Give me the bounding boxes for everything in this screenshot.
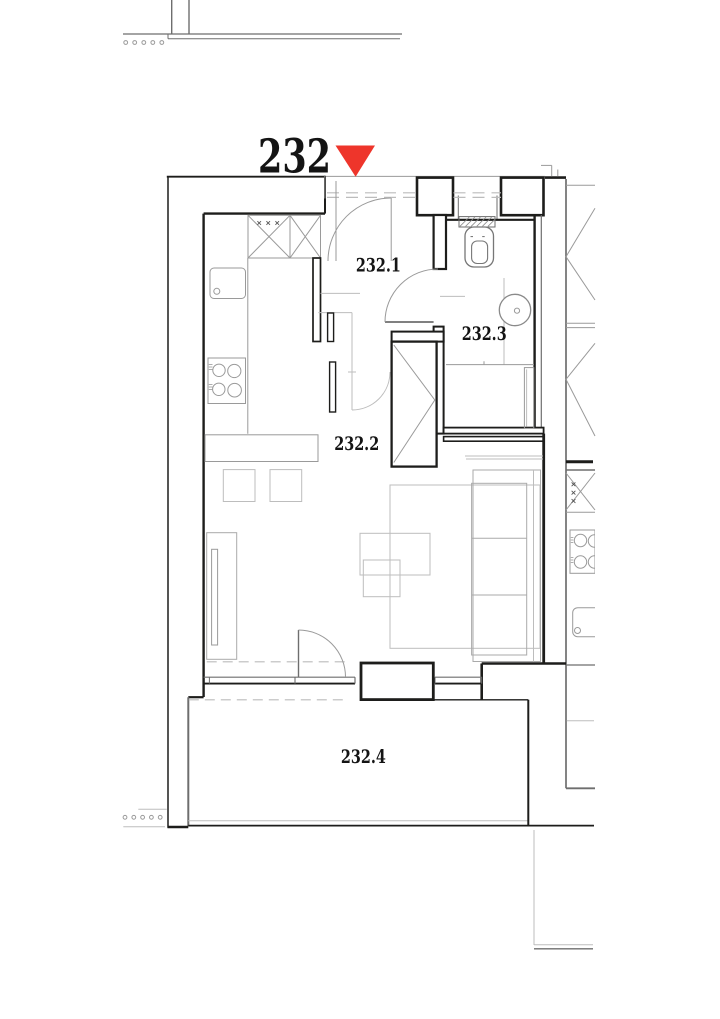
kitchen (205, 215, 321, 501)
room-label-hall: 232.1 (356, 255, 401, 277)
window-balcony-left (204, 677, 355, 683)
railing-dots-icon (124, 41, 164, 45)
niche-lines (465, 456, 543, 459)
railing-dots-icon (123, 815, 162, 819)
neighbor-sink-icon (573, 608, 600, 637)
toilet-icon (465, 227, 494, 267)
closet-door-chevron-icon (566, 343, 595, 436)
kitchen-counter-table (205, 435, 318, 462)
wall-stub-upper (328, 313, 334, 342)
kitchen-sink-icon (210, 268, 246, 299)
kitchen-cabinets-icon (248, 215, 321, 258)
wall-niche-top (444, 437, 544, 442)
washbasin-icon (499, 294, 530, 325)
shower-area (446, 361, 534, 428)
vent-marks-icon (257, 221, 279, 225)
balcony-door-swing-icon (299, 630, 346, 677)
unit-label: 232 (258, 130, 331, 185)
cistern-icon (459, 217, 495, 227)
neighbor-structure-top-left (123, 0, 402, 44)
room-label-balcony: 232.4 (341, 746, 386, 768)
room-label-bathroom: 232.3 (462, 323, 507, 345)
wall-pier-top-right (501, 178, 544, 216)
chair (223, 470, 255, 502)
sofa (472, 470, 541, 662)
wall-kitchen-partition (313, 258, 321, 342)
neighbor-stove-icon (570, 530, 601, 573)
entrance-marker-icon (336, 146, 376, 177)
window-balcony-right (435, 677, 482, 683)
wall-stub-lower (330, 362, 336, 412)
floor-plan-canvas: 232 (0, 0, 720, 1019)
coffee-tables (360, 533, 430, 596)
wardrobe-icon (392, 342, 437, 467)
wall-hall-south (392, 332, 444, 342)
chair (270, 470, 302, 502)
wall-pier-balcony (361, 663, 433, 700)
neighbor-balcony (534, 830, 593, 949)
room-label-living-kitchen: 232.2 (334, 433, 379, 455)
stove-icon (208, 358, 246, 404)
closet-door-chevron-icon (566, 208, 595, 300)
wall-pier-entrance (417, 178, 453, 216)
wall-bathroom-left-upper (434, 215, 446, 269)
duct-icon (524, 368, 533, 429)
neighbor-kitchen-cabinets-icon (566, 473, 595, 512)
neighbor-structure-bottom-left (123, 809, 167, 827)
rug (390, 485, 540, 648)
room-door-swing-icon (352, 372, 390, 410)
bathroom-door-swing-icon (385, 269, 438, 322)
living-room (207, 470, 541, 677)
tv-stand (207, 533, 237, 660)
